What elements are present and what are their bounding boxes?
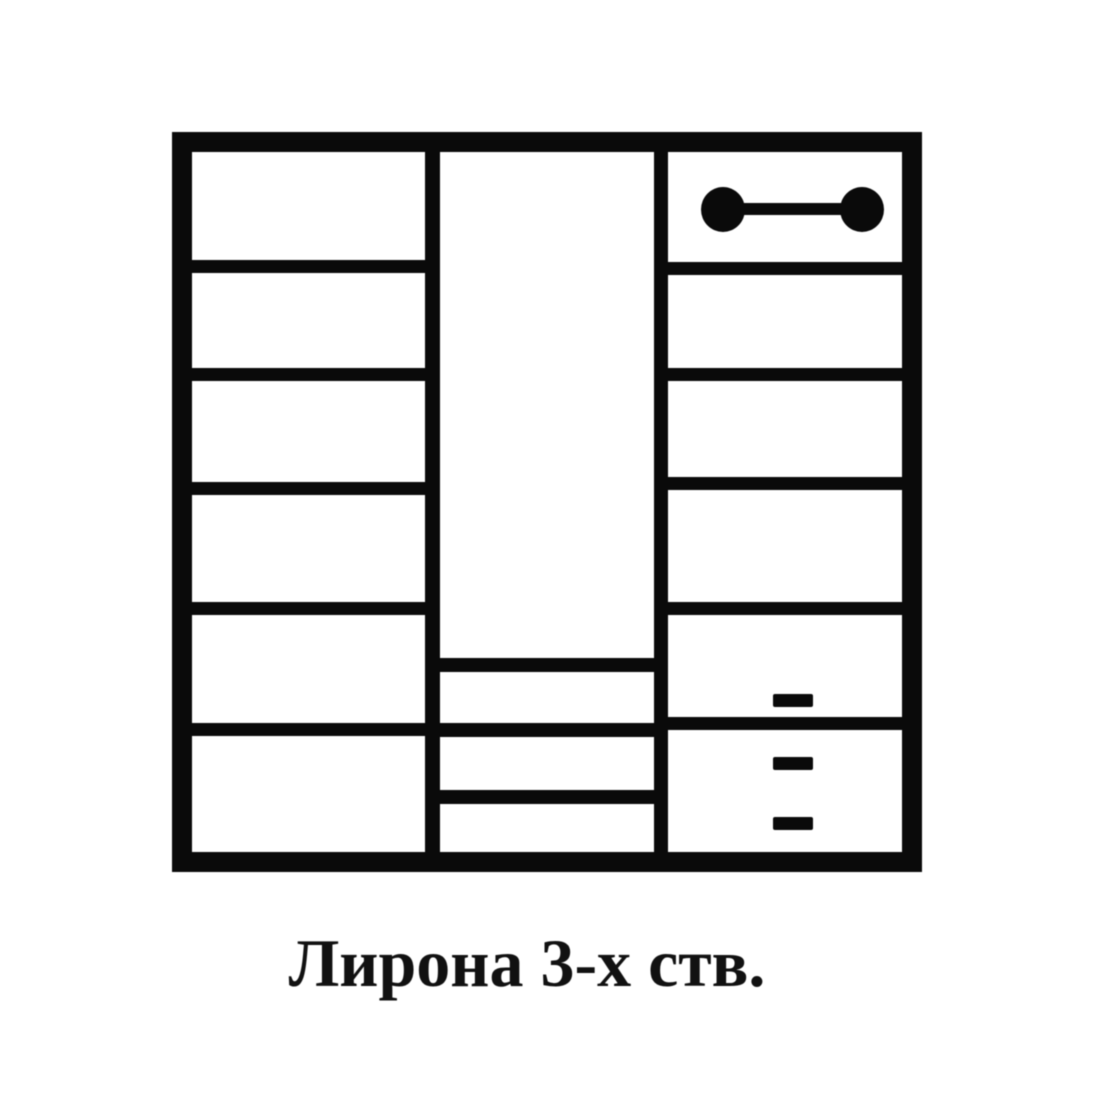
drawer-divider xyxy=(440,723,654,737)
middle-hanging-section xyxy=(440,152,654,852)
left-shelf-section xyxy=(192,152,425,852)
drawer-divider xyxy=(440,790,654,804)
hanging-rod-icon xyxy=(440,152,654,852)
right-partition xyxy=(654,152,668,852)
shelf xyxy=(192,482,425,495)
left-partition xyxy=(425,152,440,852)
right-shelf-section xyxy=(668,152,902,852)
shelf xyxy=(668,602,902,615)
product-caption: Лирона 3-х ств. xyxy=(0,924,1054,1003)
shelf xyxy=(668,477,902,490)
shelf xyxy=(668,717,902,730)
schematic-canvas: Лирона 3-х ств. xyxy=(0,0,1100,1100)
shelf xyxy=(192,368,425,381)
shelf xyxy=(192,602,425,615)
shelf xyxy=(668,368,902,381)
shelf xyxy=(192,723,425,736)
drawer-divider xyxy=(440,658,654,672)
wardrobe-diagram xyxy=(172,132,922,872)
shelf xyxy=(668,262,902,275)
shelf xyxy=(192,260,425,273)
